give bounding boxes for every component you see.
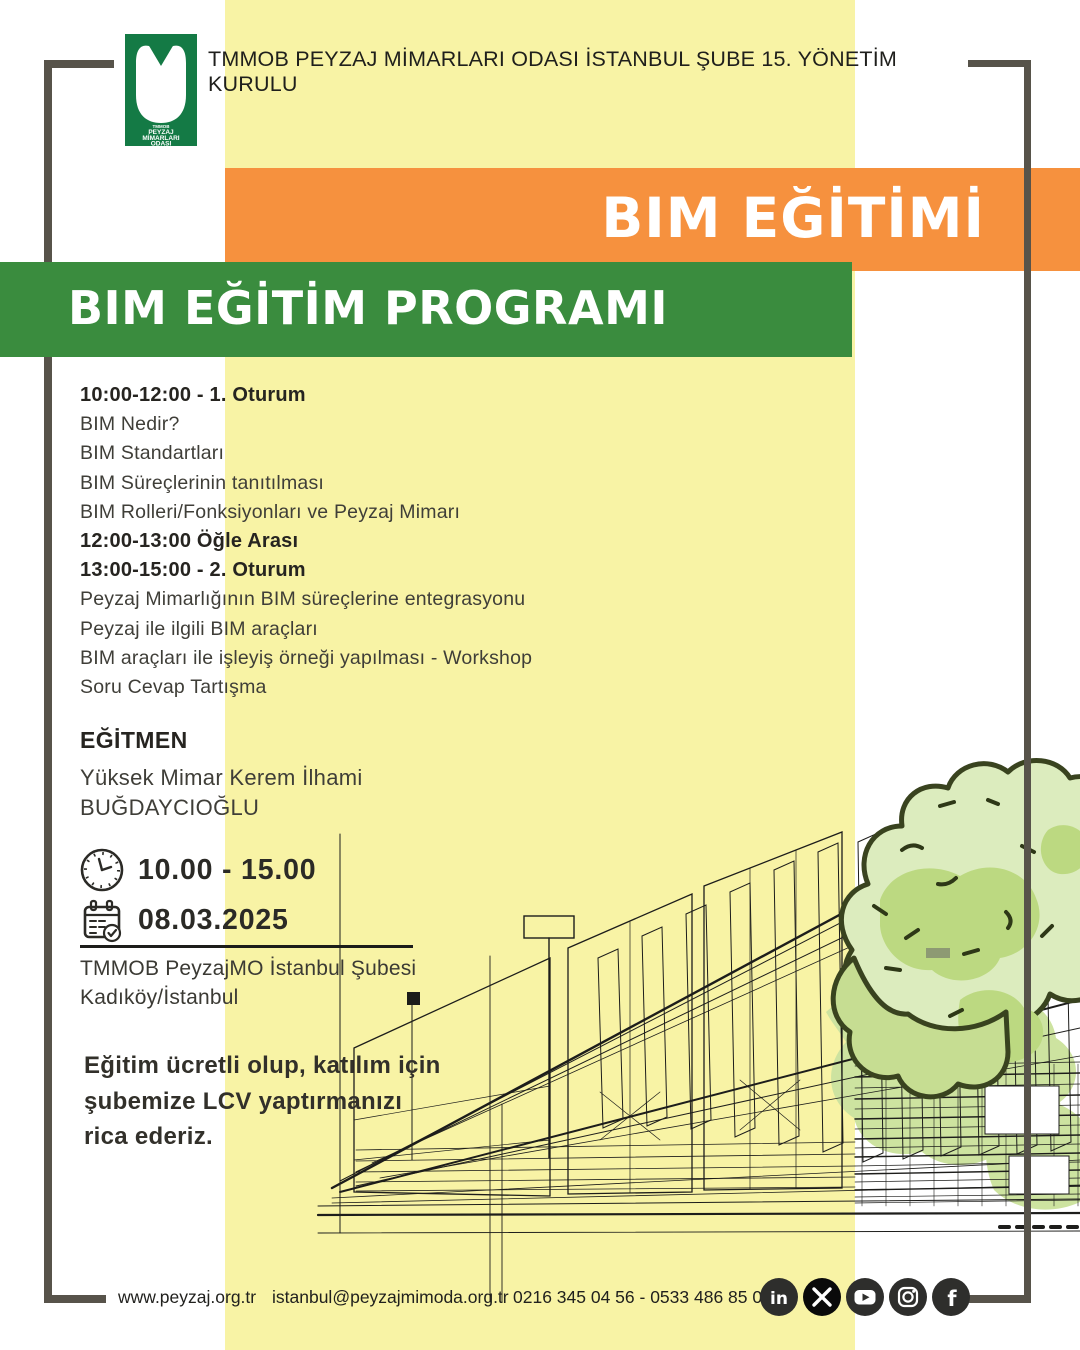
event-details: 10.00 - 15.00 08.03.2025 [78,846,316,946]
footer-phones: 0216 345 04 56 - 0533 486 85 00 [513,1287,772,1308]
program-line: 10:00-12:00 - 1. Oturum [80,381,532,410]
poster-root: TMMOB PEYZAJ MİMARLARI ODASI TMMOB PEYZA… [0,0,1080,1350]
linkedin-icon[interactable]: in [760,1278,798,1316]
svg-text:in: in [770,1289,788,1309]
facebook-icon[interactable]: f [932,1278,970,1316]
program-line: BIM Süreçlerinin tanıtılması [80,469,532,498]
program-line: BIM Rolleri/Fonksiyonları ve Peyzaj Mima… [80,498,532,527]
program-line: BIM Standartları [80,439,532,468]
logo-line3: ODASI [151,141,172,148]
main-title: BIM EĞİTİMİ [601,168,985,268]
venue-line2: Kadıköy/İstanbul [80,984,416,1013]
participation-notice: Eğitim ücretli olup, katılım için şubemi… [84,1048,441,1155]
footer-email[interactable]: istanbul@peyzajmimoda.org.tr [272,1287,509,1308]
x-icon[interactable] [803,1278,841,1316]
organization-title: TMMOB PEYZAJ MİMARLARI ODASI İSTANBUL ŞU… [208,47,908,97]
program-line: 12:00-13:00 Öğle Arası [80,527,532,556]
venue-line1: TMMOB PeyzajMO İstanbul Şubesi [80,955,416,984]
frame-top-left-corner [44,60,114,68]
youtube-icon[interactable] [846,1278,884,1316]
instructor-name-line2: BUĞDAYCIOĞLU [80,793,363,823]
footer-website[interactable]: www.peyzaj.org.tr [118,1287,256,1308]
frame-left-line [44,60,52,1303]
program-schedule: 10:00-12:00 - 1. OturumBIM Nedir?BIM Sta… [80,381,532,702]
clock-icon [78,846,126,894]
social-icons: in f [760,1278,970,1316]
program-line: Peyzaj ile ilgili BIM araçları [80,615,532,644]
venue-block: TMMOB PeyzajMO İstanbul Şubesi Kadıköy/İ… [80,955,416,1012]
frame-top-right-corner [968,60,1031,67]
instagram-icon[interactable] [889,1278,927,1316]
main-title-banner: BIM EĞİTİMİ [225,168,1080,271]
event-date: 08.03.2025 [138,904,289,937]
date-row: 08.03.2025 [78,896,316,944]
frame-right-line [1024,60,1031,1303]
calendar-icon [78,896,126,944]
subtitle-banner: BIM EĞİTİM PROGRAMI [0,262,852,357]
program-line: BIM Nedir? [80,410,532,439]
instructor-name-line1: Yüksek Mimar Kerem İlhami [80,763,363,793]
subtitle: BIM EĞİTİM PROGRAMI [68,262,668,355]
program-line: Soru Cevap Tartışma [80,673,532,702]
footer-bar: www.peyzaj.org.tr istanbul@peyzajmimoda.… [0,1277,1080,1317]
notice-line2: şubemize LCV yaptırmanızı [84,1084,441,1120]
time-row: 10.00 - 15.00 [78,846,316,894]
program-line: BIM araçları ile işleyiş örneği yapılmas… [80,644,532,673]
instructor-heading: EĞİTMEN [80,727,363,754]
svg-text:f: f [947,1287,957,1311]
event-time: 10.00 - 15.00 [138,854,316,887]
instructor-block: EĞİTMEN Yüksek Mimar Kerem İlhami BUĞDAY… [80,727,363,823]
divider-line [80,945,413,948]
program-line: 13:00-15:00 - 2. Oturum [80,556,532,585]
program-line: Peyzaj Mimarlığının BIM süreçlerine ente… [80,585,532,614]
chamber-logo: TMMOB PEYZAJ MİMARLARI ODASI [124,33,198,147]
notice-line3: rica ederiz. [84,1119,441,1155]
notice-line1: Eğitim ücretli olup, katılım için [84,1048,441,1084]
